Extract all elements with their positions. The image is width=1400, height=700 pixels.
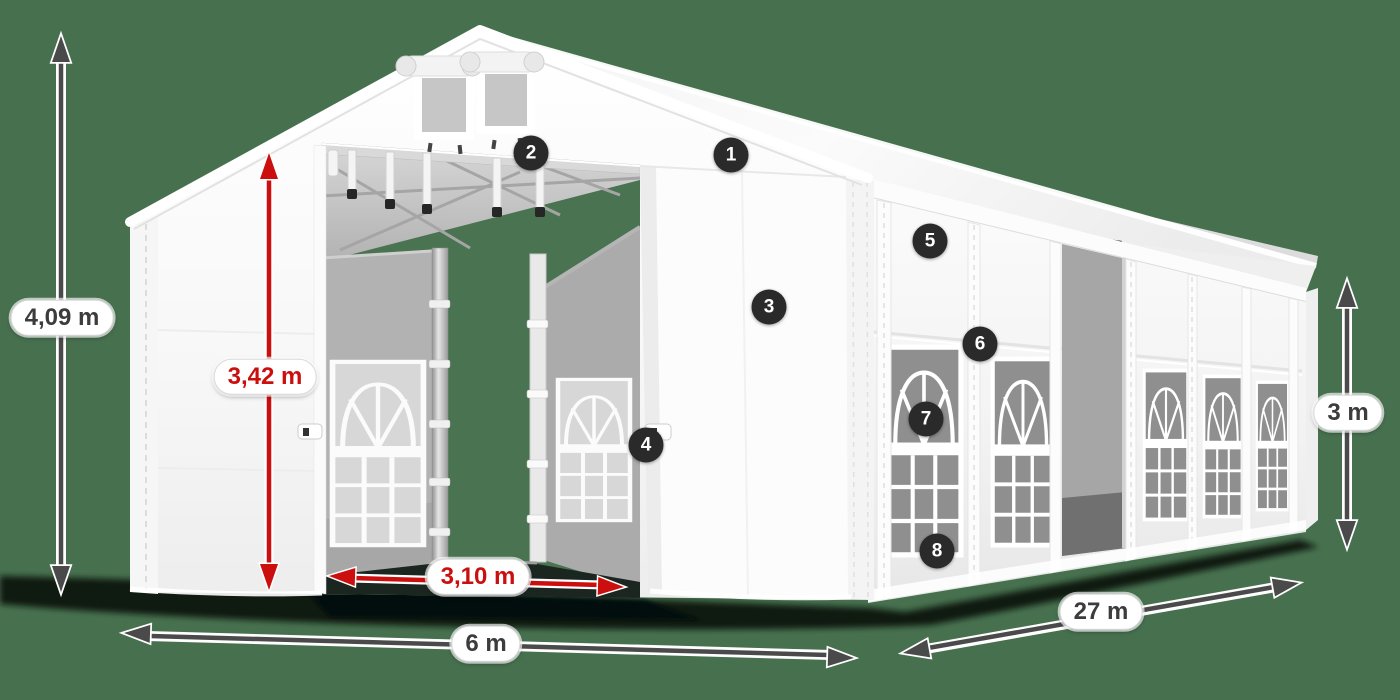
callout-badge-7[interactable]: 7 bbox=[909, 402, 944, 437]
vent-roller-right bbox=[460, 52, 544, 72]
callout-badge-5[interactable]: 5 bbox=[913, 224, 948, 259]
callout-badge-4[interactable]: 4 bbox=[629, 428, 664, 463]
dimension-label-side-height: 3 m bbox=[1313, 395, 1382, 431]
dimension-label-width: 6 m bbox=[451, 626, 520, 662]
entrance-opening bbox=[322, 146, 640, 598]
entrance-frame-pole bbox=[432, 248, 448, 562]
side-wall-opening bbox=[1062, 244, 1126, 556]
left-door-handle bbox=[298, 424, 322, 439]
interior-window-right bbox=[558, 379, 630, 520]
tent-illustration bbox=[0, 0, 1400, 700]
dimension-label-length: 27 m bbox=[1060, 594, 1143, 630]
interior-window-left bbox=[333, 362, 424, 545]
dimension-label-inner-height: 3,42 m bbox=[214, 359, 317, 395]
callout-badge-6[interactable]: 6 bbox=[963, 327, 998, 362]
callout-badge-8[interactable]: 8 bbox=[920, 534, 955, 569]
tent-diagram-stage: 4,09 m 3,42 m 3,10 m 6 m 27 m 3 m 1 2 3 … bbox=[0, 0, 1400, 700]
front-corner-pillar bbox=[846, 179, 874, 600]
callout-badge-2[interactable]: 2 bbox=[514, 136, 549, 171]
entrance-door-panel bbox=[640, 166, 852, 598]
dimension-label-entrance-width: 3,10 m bbox=[427, 559, 530, 595]
dimension-label-total-height: 4,09 m bbox=[11, 300, 114, 336]
callout-badge-1[interactable]: 1 bbox=[714, 138, 749, 173]
callout-badge-3[interactable]: 3 bbox=[752, 290, 787, 325]
